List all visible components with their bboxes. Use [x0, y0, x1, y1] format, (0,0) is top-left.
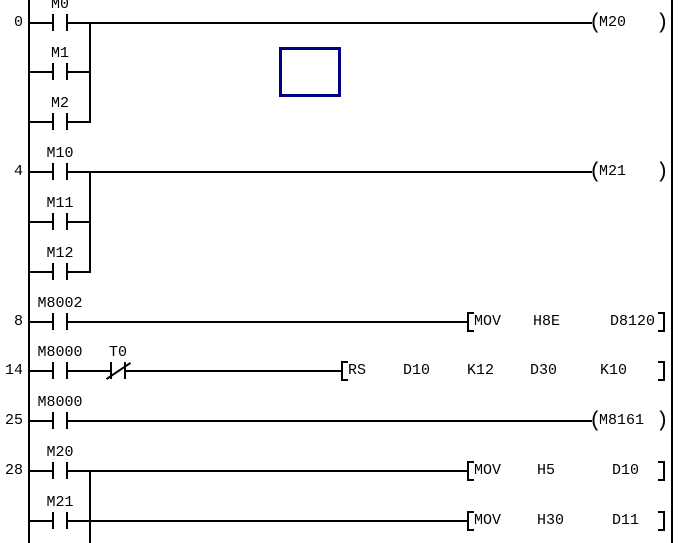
wire — [68, 271, 91, 273]
contact-label: M1 — [15, 46, 105, 61]
no-contact-bar[interactable] — [52, 263, 54, 280]
instruction-text[interactable]: H5 — [537, 463, 555, 478]
instruction-text[interactable]: MOV — [474, 463, 501, 478]
wire — [68, 321, 469, 323]
wire — [28, 470, 52, 472]
coil-close-paren: ) — [656, 408, 666, 435]
coil-open-paren[interactable]: ( — [589, 159, 599, 186]
coil-label[interactable]: M8161 — [599, 413, 644, 428]
wire — [28, 321, 52, 323]
no-contact-bar[interactable] — [52, 362, 54, 379]
no-contact-bar[interactable] — [52, 313, 54, 330]
wire — [68, 420, 592, 422]
instruction-text[interactable]: K12 — [467, 363, 494, 378]
step-number: 25 — [0, 413, 23, 428]
contact-label: M21 — [15, 495, 105, 510]
instruction-text[interactable]: MOV — [474, 513, 501, 528]
instruction-text[interactable]: H8E — [533, 314, 560, 329]
contact-label: M10 — [15, 146, 105, 161]
right-power-rail — [671, 0, 673, 543]
wire — [28, 221, 52, 223]
instruction-open-bracket[interactable] — [467, 511, 474, 531]
coil-open-paren[interactable]: ( — [589, 408, 599, 435]
instruction-close-bracket — [658, 461, 665, 481]
wire — [28, 121, 52, 123]
wire — [28, 370, 52, 372]
contact-label: M11 — [15, 196, 105, 211]
instruction-text[interactable]: MOV — [474, 314, 501, 329]
wire — [68, 71, 91, 73]
contact-label: M20 — [15, 445, 105, 460]
no-contact-bar[interactable] — [52, 512, 54, 529]
instruction-close-bracket — [658, 511, 665, 531]
no-contact-bar[interactable] — [52, 462, 54, 479]
step-number: 0 — [0, 15, 23, 30]
no-contact-bar[interactable] — [52, 14, 54, 31]
instruction-text[interactable]: K10 — [600, 363, 627, 378]
step-number: 14 — [0, 363, 23, 378]
coil-label[interactable]: M21 — [599, 164, 626, 179]
wire — [28, 420, 52, 422]
wire — [68, 171, 592, 173]
instruction-text[interactable]: D10 — [612, 463, 639, 478]
step-number: 8 — [0, 314, 23, 329]
instruction-text[interactable]: D8120 — [610, 314, 655, 329]
instruction-text[interactable]: D11 — [612, 513, 639, 528]
step-number: 28 — [0, 463, 23, 478]
instruction-text[interactable]: H30 — [537, 513, 564, 528]
coil-close-paren: ) — [656, 159, 666, 186]
instruction-text[interactable]: D30 — [530, 363, 557, 378]
coil-close-paren: ) — [656, 10, 666, 37]
coil-open-paren[interactable]: ( — [589, 10, 599, 37]
contact-label: M12 — [15, 246, 105, 261]
contact-label: M8000 — [15, 395, 105, 410]
instruction-close-bracket — [658, 312, 665, 332]
wire — [68, 370, 110, 372]
wire — [68, 520, 469, 522]
no-contact-bar[interactable] — [52, 113, 54, 130]
contact-label: M0 — [15, 0, 105, 12]
wire — [68, 221, 91, 223]
no-contact-bar[interactable] — [52, 163, 54, 180]
wire — [68, 470, 469, 472]
wire — [28, 22, 52, 24]
instruction-open-bracket[interactable] — [341, 361, 348, 381]
wire — [28, 520, 52, 522]
ladder-editor-canvas[interactable]: 0M0(M20)M1M24M10(M21)M11M128M8002MOVH8ED… — [0, 0, 683, 543]
instruction-open-bracket[interactable] — [467, 461, 474, 481]
no-contact-bar[interactable] — [52, 412, 54, 429]
wire — [28, 171, 52, 173]
instruction-close-bracket — [658, 361, 665, 381]
wire — [126, 370, 343, 372]
step-number: 4 — [0, 164, 23, 179]
coil-label[interactable]: M20 — [599, 15, 626, 30]
wire — [28, 271, 52, 273]
instruction-text[interactable]: RS — [348, 363, 366, 378]
wire — [68, 22, 592, 24]
instruction-text[interactable]: D10 — [403, 363, 430, 378]
wire — [28, 71, 52, 73]
contact-label: M2 — [15, 96, 105, 111]
instruction-open-bracket[interactable] — [467, 312, 474, 332]
wire — [68, 121, 91, 123]
no-contact-bar[interactable] — [52, 63, 54, 80]
edit-cursor[interactable] — [279, 47, 341, 97]
contact-label: T0 — [73, 345, 163, 360]
contact-label: M8002 — [15, 296, 105, 311]
no-contact-bar[interactable] — [52, 213, 54, 230]
